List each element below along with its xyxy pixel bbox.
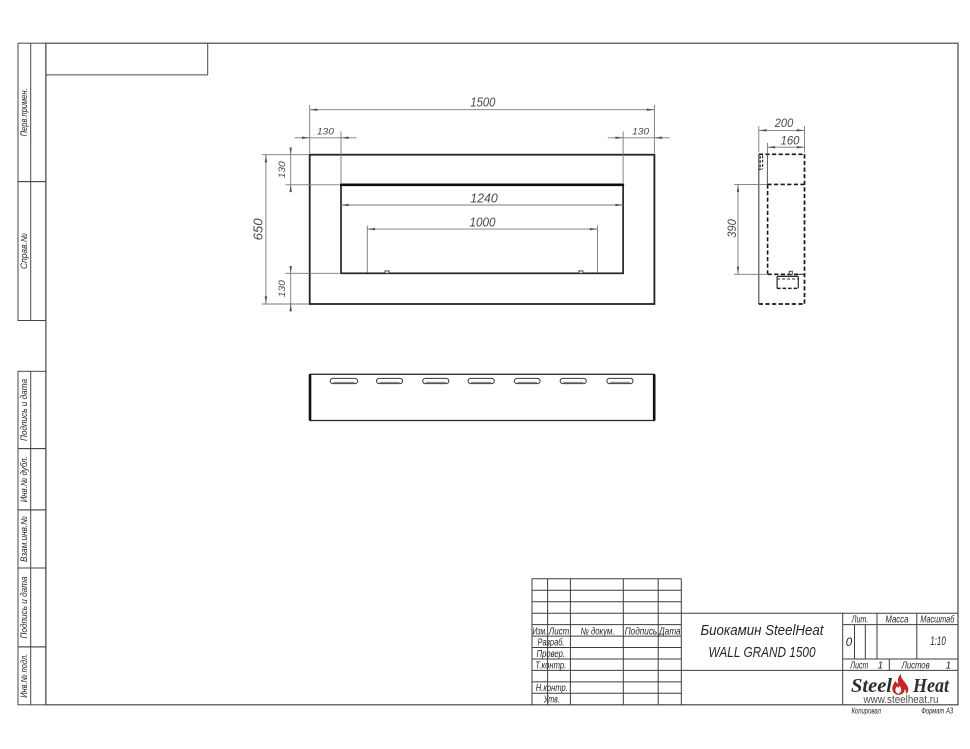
- svg-text:WALL GRAND 1500: WALL GRAND 1500: [709, 645, 816, 661]
- svg-text:650: 650: [250, 218, 265, 241]
- svg-text:1: 1: [878, 660, 883, 671]
- svg-text:Подпись: Подпись: [625, 626, 658, 637]
- svg-text:200: 200: [774, 116, 793, 130]
- svg-text:0: 0: [846, 637, 853, 649]
- svg-text:Взам.инв.№: Взам.инв.№: [19, 516, 29, 562]
- svg-text:Инв.№ подл.: Инв.№ подл.: [19, 654, 29, 698]
- svg-text:Масштаб: Масштаб: [920, 615, 954, 626]
- svg-text:160: 160: [781, 133, 800, 147]
- svg-text:Утв.: Утв.: [543, 695, 560, 706]
- svg-text:Лист: Лист: [850, 660, 869, 671]
- svg-text:130: 130: [632, 127, 650, 138]
- svg-text:№ докум.: № докум.: [581, 626, 615, 637]
- svg-text:130: 130: [277, 280, 288, 298]
- svg-text:Формат А3: Формат А3: [921, 706, 953, 716]
- svg-text:1240: 1240: [470, 190, 498, 205]
- svg-text:Биокамин SteelHeat: Биокамин SteelHeat: [701, 623, 825, 639]
- svg-text:Лит.: Лит.: [851, 615, 868, 626]
- svg-text:Подпись и дата: Подпись и дата: [19, 576, 29, 638]
- svg-text:Листов: Листов: [901, 660, 930, 671]
- svg-text:390: 390: [725, 219, 739, 238]
- svg-text:Лист: Лист: [548, 626, 569, 637]
- svg-text:Н.контр.: Н.контр.: [536, 683, 568, 694]
- svg-text:Провер.: Провер.: [537, 649, 566, 660]
- svg-text:1500: 1500: [470, 95, 496, 110]
- svg-text:Перв.примен.: Перв.примен.: [19, 88, 29, 136]
- svg-text:1000: 1000: [470, 215, 497, 230]
- svg-text:Подпись и дата: Подпись и дата: [19, 379, 29, 441]
- svg-text:130: 130: [277, 161, 288, 179]
- svg-text:Копировал: Копировал: [851, 706, 881, 716]
- svg-text:Инв.№ дубл.: Инв.№ дубл.: [19, 456, 29, 502]
- svg-text:Масса: Масса: [885, 615, 908, 626]
- svg-text:Разраб.: Разраб.: [538, 638, 565, 649]
- svg-text:Т.контр.: Т.контр.: [535, 660, 566, 671]
- svg-text:1: 1: [946, 660, 951, 671]
- svg-text:www.steelheat.ru: www.steelheat.ru: [863, 694, 939, 706]
- svg-text:Справ.№: Справ.№: [19, 233, 29, 269]
- svg-text:130: 130: [317, 127, 335, 138]
- svg-text:1:10: 1:10: [930, 636, 946, 648]
- svg-text:Дата: Дата: [658, 626, 681, 637]
- svg-text:Изм.: Изм.: [533, 626, 548, 637]
